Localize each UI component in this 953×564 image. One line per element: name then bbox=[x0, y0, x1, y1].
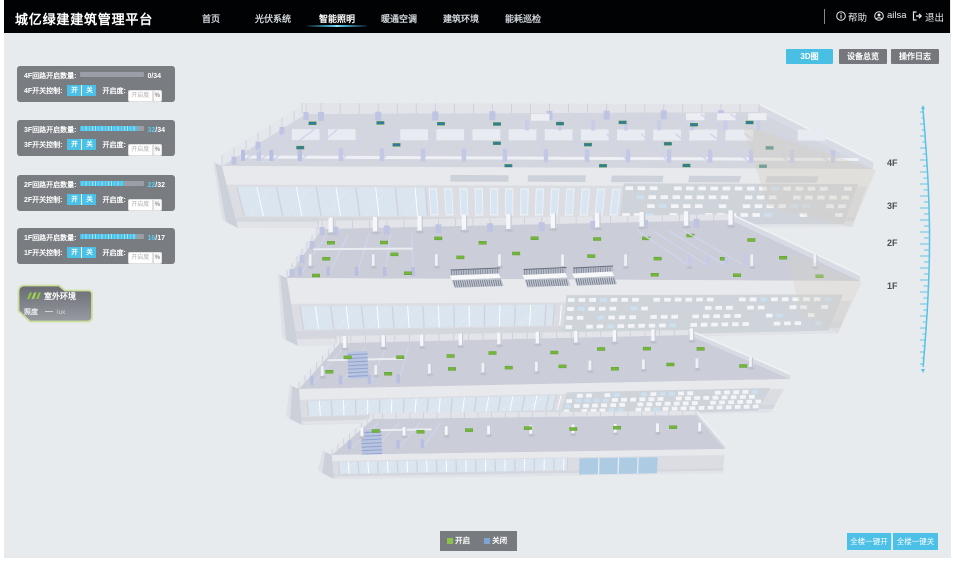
svg-text:照度: 照度 bbox=[24, 307, 39, 316]
svg-text:lux: lux bbox=[57, 309, 66, 316]
svg-text:室外环境: 室外环境 bbox=[44, 291, 76, 301]
svg-text:—: — bbox=[45, 307, 53, 316]
